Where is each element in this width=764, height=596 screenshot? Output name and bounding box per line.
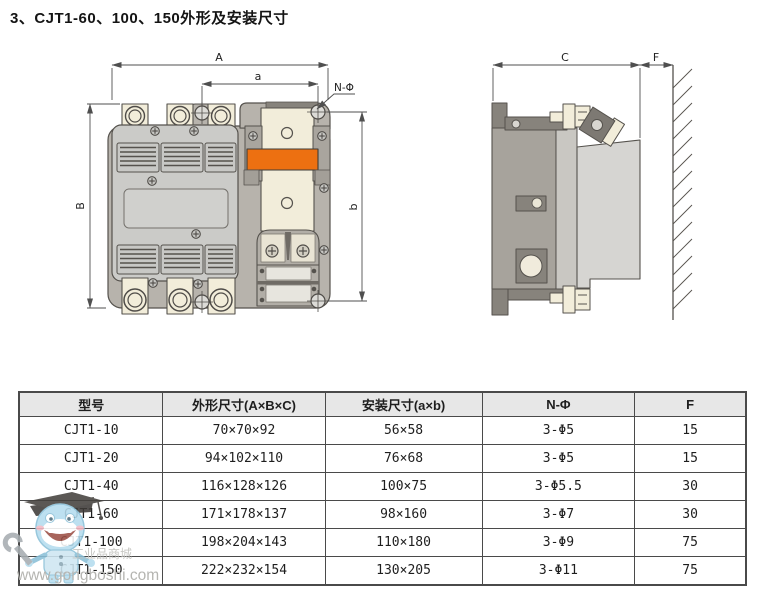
cell-mount: 76×68 <box>325 445 482 473</box>
dim-label-C: C <box>561 51 569 64</box>
dim-label-b: b <box>347 203 360 210</box>
side-front-block <box>577 140 640 288</box>
cell-f: 30 <box>635 501 746 529</box>
cell-outline: 222×232×154 <box>163 557 325 586</box>
screw-icon <box>151 127 160 136</box>
cell-holes: 3-Φ5.5 <box>482 473 635 501</box>
cell-holes: 3-Φ5 <box>482 445 635 473</box>
col-header-holes: N-Φ <box>482 392 635 417</box>
cell-f: 15 <box>635 445 746 473</box>
cell-model: CJT1-100 <box>19 529 163 557</box>
cell-model: CJT1-10 <box>19 417 163 445</box>
bottom-terminals <box>122 278 235 314</box>
screw-icon <box>194 280 203 289</box>
table-row: CJT1-150 222×232×154 130×205 3-Φ11 75 <box>19 557 746 586</box>
side-view <box>492 65 692 320</box>
cell-holes: 3-Φ5 <box>482 417 635 445</box>
cell-mount: 56×58 <box>325 417 482 445</box>
vent-grids-bottom <box>117 245 236 274</box>
table-row: CJT1-100 198×204×143 110×180 3-Φ9 75 <box>19 529 746 557</box>
cell-mount: 98×160 <box>325 501 482 529</box>
cell-f: 15 <box>635 417 746 445</box>
cell-outline: 171×178×137 <box>163 501 325 529</box>
coil-band <box>247 149 318 170</box>
dim-label-A: A <box>215 51 223 64</box>
table-row: CJT1-20 94×102×110 76×68 3-Φ5 15 <box>19 445 746 473</box>
cell-f: 30 <box>635 473 746 501</box>
vent-grids-top <box>117 143 236 172</box>
screw-icon <box>320 184 329 193</box>
screw-icon <box>190 127 199 136</box>
col-header-model: 型号 <box>19 392 163 417</box>
screw-icon <box>148 177 157 186</box>
cell-holes: 3-Φ11 <box>482 557 635 586</box>
cell-mount: 130×205 <box>325 557 482 586</box>
table-header-row: 型号 外形尺寸(A×B×C) 安装尺寸(a×b) N-Φ F <box>19 392 746 417</box>
cell-f: 75 <box>635 557 746 586</box>
mounting-wall <box>673 65 692 320</box>
cell-holes: 3-Φ7 <box>482 501 635 529</box>
dim-label-F: F <box>653 51 659 64</box>
screw-icon <box>266 245 278 257</box>
screw-icon <box>320 246 329 255</box>
nameplate-recess <box>124 189 228 228</box>
cell-holes: 3-Φ9 <box>482 529 635 557</box>
screw-icon <box>192 230 201 239</box>
cell-outline: 94×102×110 <box>163 445 325 473</box>
dim-label-B: B <box>74 202 87 210</box>
dimension-drawing: A a B b N-Φ <box>0 0 764 385</box>
cell-mount: 110×180 <box>325 529 482 557</box>
spec-table: 型号 外形尺寸(A×B×C) 安装尺寸(a×b) N-Φ F CJT1-10 7… <box>18 391 747 586</box>
col-header-f: F <box>635 392 746 417</box>
table-row: CJT1-60 171×178×137 98×160 3-Φ7 30 <box>19 501 746 529</box>
cell-mount: 100×75 <box>325 473 482 501</box>
cell-f: 75 <box>635 529 746 557</box>
cell-outline: 198×204×143 <box>163 529 325 557</box>
table-row: CJT1-40 116×128×126 100×75 3-Φ5.5 30 <box>19 473 746 501</box>
screw-icon <box>318 132 327 141</box>
screw-icon <box>297 245 309 257</box>
datasheet-page: 3、CJT1-60、100、150外形及安装尺寸 <box>0 0 764 596</box>
hole-callout-label: N-Φ <box>334 82 354 94</box>
cell-model: CJT1-20 <box>19 445 163 473</box>
cell-outline: 70×70×92 <box>163 417 325 445</box>
screw-icon <box>149 279 158 288</box>
cell-outline: 116×128×126 <box>163 473 325 501</box>
dim-label-a: a <box>255 70 262 83</box>
front-view <box>108 101 330 314</box>
table-row: CJT1-10 70×70×92 56×58 3-Φ5 15 <box>19 417 746 445</box>
cell-model: CJT1-40 <box>19 473 163 501</box>
screw-icon <box>249 132 258 141</box>
cell-model: CJT1-150 <box>19 557 163 586</box>
cell-model: CJT1-60 <box>19 501 163 529</box>
col-header-outline-size: 外形尺寸(A×B×C) <box>163 392 325 417</box>
col-header-mount-size: 安装尺寸(a×b) <box>325 392 482 417</box>
spec-table-container: 型号 外形尺寸(A×B×C) 安装尺寸(a×b) N-Φ F CJT1-10 7… <box>18 391 747 586</box>
